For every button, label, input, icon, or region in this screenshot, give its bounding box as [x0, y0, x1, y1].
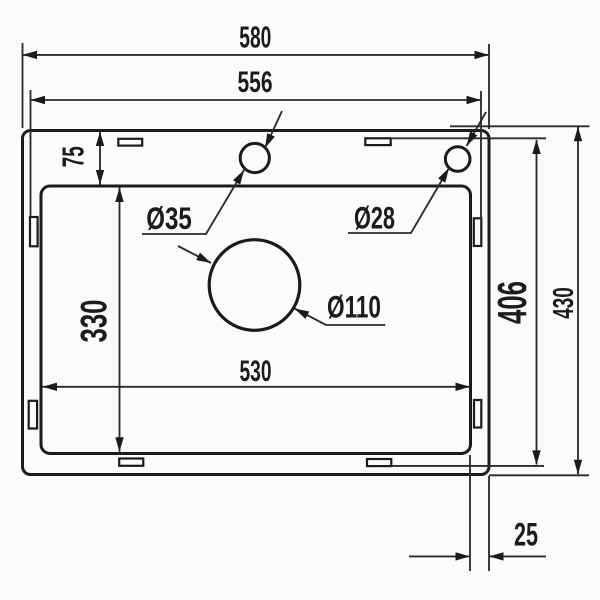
svg-text:430: 430: [548, 287, 580, 319]
svg-text:330: 330: [73, 300, 115, 343]
svg-text:Ø110: Ø110: [327, 289, 381, 325]
svg-text:Ø28: Ø28: [354, 200, 395, 236]
svg-text:406: 406: [489, 281, 535, 324]
svg-text:75: 75: [57, 146, 91, 167]
svg-text:25: 25: [514, 517, 538, 553]
svg-text:580: 580: [239, 21, 271, 55]
svg-text:Ø35: Ø35: [146, 200, 192, 236]
svg-text:556: 556: [238, 66, 273, 99]
svg-text:530: 530: [240, 355, 272, 388]
